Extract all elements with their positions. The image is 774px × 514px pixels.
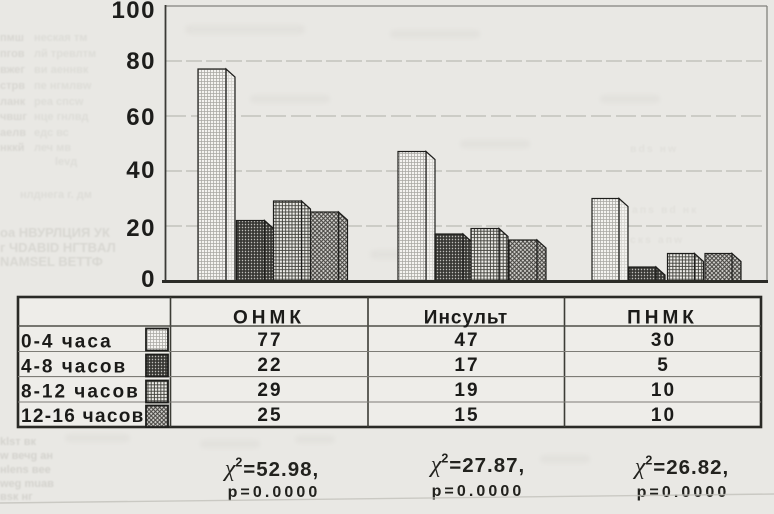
svg-text:80: 80: [126, 48, 156, 75]
svg-text:вsк нг: вsк нг: [0, 491, 33, 503]
svg-text:p=0.0000: p=0.0000: [228, 484, 321, 501]
svg-text:100: 100: [111, 0, 156, 24]
svg-text:8-12 часов: 8-12 часов: [21, 382, 140, 403]
svg-text:вds нw: вds нw: [630, 143, 678, 155]
svg-text:29: 29: [257, 380, 282, 401]
svg-text:г ЧDАВID НГТBАЛ: г ЧDАВID НГТBАЛ: [0, 240, 116, 255]
svg-text:weg muав: weg muав: [0, 478, 54, 490]
svg-text:klsт вк: klsт вк: [0, 436, 36, 448]
svg-text:77: 77: [257, 330, 282, 351]
svg-text:10: 10: [651, 405, 676, 426]
svg-text:нккй: нккй: [0, 142, 24, 154]
svg-text:оа НВУРЛЦИЯ УК: оа НВУРЛЦИЯ УК: [0, 225, 110, 240]
svg-text:0: 0: [141, 266, 156, 293]
svg-text:w вечg ан: w вечg ан: [0, 450, 53, 462]
svg-text:12-16 часов: 12-16 часов: [21, 406, 145, 427]
svg-text:скs апw: скs апw: [630, 234, 684, 246]
svg-text:пмш: пмш: [0, 32, 24, 44]
svg-text:нлднега г. дм: нлднега г. дм: [20, 189, 92, 201]
svg-text:реа спсw: реа спсw: [34, 96, 84, 108]
svg-text:22: 22: [257, 355, 282, 376]
svg-text:неская тм: неская тм: [34, 32, 87, 44]
svg-text:ланк: ланк: [0, 96, 26, 108]
svg-text:аелв: аелв: [0, 127, 26, 139]
svg-text:NАMSЕL ВЕТТФ: NАMSЕL ВЕТТФ: [0, 254, 103, 269]
svg-text:Инсульт: Инсульт: [424, 308, 508, 329]
svg-text:леч мв: леч мв: [34, 142, 71, 154]
svg-text:25: 25: [257, 405, 282, 426]
svg-text:0-4 часа: 0-4 часа: [21, 332, 113, 353]
svg-text:чвшг: чвшг: [0, 111, 27, 123]
svg-text:едс вс: едс вс: [34, 127, 69, 139]
svg-text:19: 19: [454, 380, 479, 401]
svg-text:вжег: вжег: [0, 64, 25, 76]
svg-text:пгов: пгов: [0, 48, 25, 60]
svg-text:5: 5: [657, 355, 670, 376]
svg-text:30: 30: [651, 330, 676, 351]
svg-text:10: 10: [651, 380, 676, 401]
svg-text:лй тревлтм: лй тревлтм: [34, 48, 96, 60]
svg-text:20: 20: [126, 215, 156, 242]
svg-text:4-8 часов: 4-8 часов: [21, 357, 127, 378]
svg-text:апs вd нк: апs вd нк: [632, 204, 698, 216]
svg-text:p=0.0000: p=0.0000: [637, 484, 730, 501]
svg-text:ПНМК: ПНМК: [627, 308, 698, 329]
svg-text:ОНМК: ОНМК: [233, 308, 305, 329]
svg-text:нце гнлвд: нце гнлвд: [34, 111, 89, 123]
svg-text:стрв: стрв: [0, 80, 25, 92]
svg-text:levд: levд: [55, 156, 77, 168]
svg-text:15: 15: [454, 405, 479, 426]
svg-text:пе нгмлвw: пе нгмлвw: [34, 80, 92, 92]
svg-text:60: 60: [126, 104, 156, 131]
svg-text:17: 17: [454, 355, 479, 376]
svg-text:40: 40: [126, 157, 156, 184]
svg-text:ви аеннвк: ви аеннвк: [34, 64, 89, 76]
svg-text:нlens вee: нlens вee: [0, 464, 51, 476]
svg-text:47: 47: [454, 330, 479, 351]
